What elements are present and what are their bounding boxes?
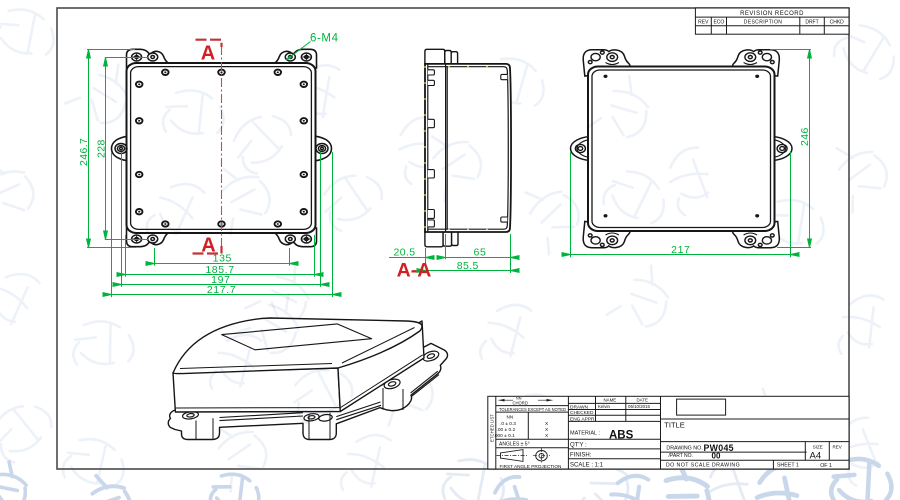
svg-text:REV: REV: [833, 445, 842, 450]
svg-text:20.5: 20.5: [393, 247, 415, 259]
svg-text:FINISH:: FINISH:: [570, 452, 592, 458]
svg-text:6-M4: 6-M4: [310, 33, 339, 45]
svg-text:DRFT: DRFT: [805, 19, 818, 25]
svg-text:.00 ± 0.2: .00 ± 0.2: [497, 427, 516, 433]
svg-text:217.7: 217.7: [207, 284, 236, 296]
svg-text:246: 246: [799, 127, 811, 146]
svg-text:SCALE : 1:1: SCALE : 1:1: [570, 462, 604, 468]
svg-text:TOLERANCES EXCEPT AS NOTED: TOLERANCES EXCEPT AS NOTED: [499, 407, 566, 412]
svg-text:ECO: ECO: [713, 19, 724, 25]
svg-text:MATERIAL :: MATERIAL :: [570, 431, 600, 437]
svg-text:REV: REV: [698, 19, 709, 25]
svg-text:ABS: ABS: [609, 429, 634, 441]
svg-text:228: 228: [96, 139, 108, 158]
svg-text:00: 00: [712, 452, 721, 461]
svg-text:SIZE: SIZE: [813, 445, 823, 450]
svg-text:CHECKED: CHECKED: [570, 410, 594, 416]
svg-text:217: 217: [671, 244, 690, 256]
svg-text:DESCRIPTION: DESCRIPTION: [744, 19, 783, 25]
svg-text:OF 1: OF 1: [820, 463, 832, 469]
svg-text:ANGLES ± 5°: ANGLES ± 5°: [499, 442, 530, 448]
svg-text:A: A: [201, 43, 215, 65]
svg-text:/PART NO.: /PART NO.: [669, 453, 693, 459]
svg-text:NAME: NAME: [604, 398, 617, 403]
svg-text:REVISION RECORD: REVISION RECORD: [740, 11, 804, 17]
svg-text:A-A: A-A: [397, 260, 432, 282]
svg-text:SHEET 1: SHEET 1: [777, 463, 799, 469]
svg-text:A4: A4: [810, 451, 822, 462]
svg-text:TITLE: TITLE: [664, 421, 684, 430]
svg-text:NN: NN: [507, 414, 514, 419]
svg-text:246.7: 246.7: [78, 138, 90, 166]
svg-text:DRAWN: DRAWN: [570, 404, 588, 410]
svg-text:05/10/2015: 05/10/2015: [628, 404, 651, 409]
svg-text:.0 ± 0.3: .0 ± 0.3: [500, 421, 516, 427]
svg-text:Kelvin: Kelvin: [598, 404, 611, 409]
svg-text:.000 ± 0.1: .000 ± 0.1: [494, 433, 516, 439]
svg-text:85.5: 85.5: [457, 260, 479, 272]
svg-text:DO NOT SCALE DRAWING: DO NOT SCALE DRAWING: [666, 463, 740, 469]
svg-text:DATE: DATE: [637, 398, 648, 403]
svg-text:65: 65: [474, 247, 487, 259]
svg-text:135: 135: [213, 253, 232, 265]
svg-text:CHKD: CHKD: [830, 19, 845, 25]
svg-text:QT'Y :: QT'Y :: [570, 443, 587, 449]
svg-text:FIRST ANGLE PROJECTION: FIRST ANGLE PROJECTION: [500, 464, 562, 469]
svg-text:ENG APPR: ENG APPR: [570, 416, 595, 422]
svg-text:CHORD: CHORD: [513, 401, 528, 406]
svg-text:DRAWING NO.: DRAWING NO.: [666, 445, 702, 451]
